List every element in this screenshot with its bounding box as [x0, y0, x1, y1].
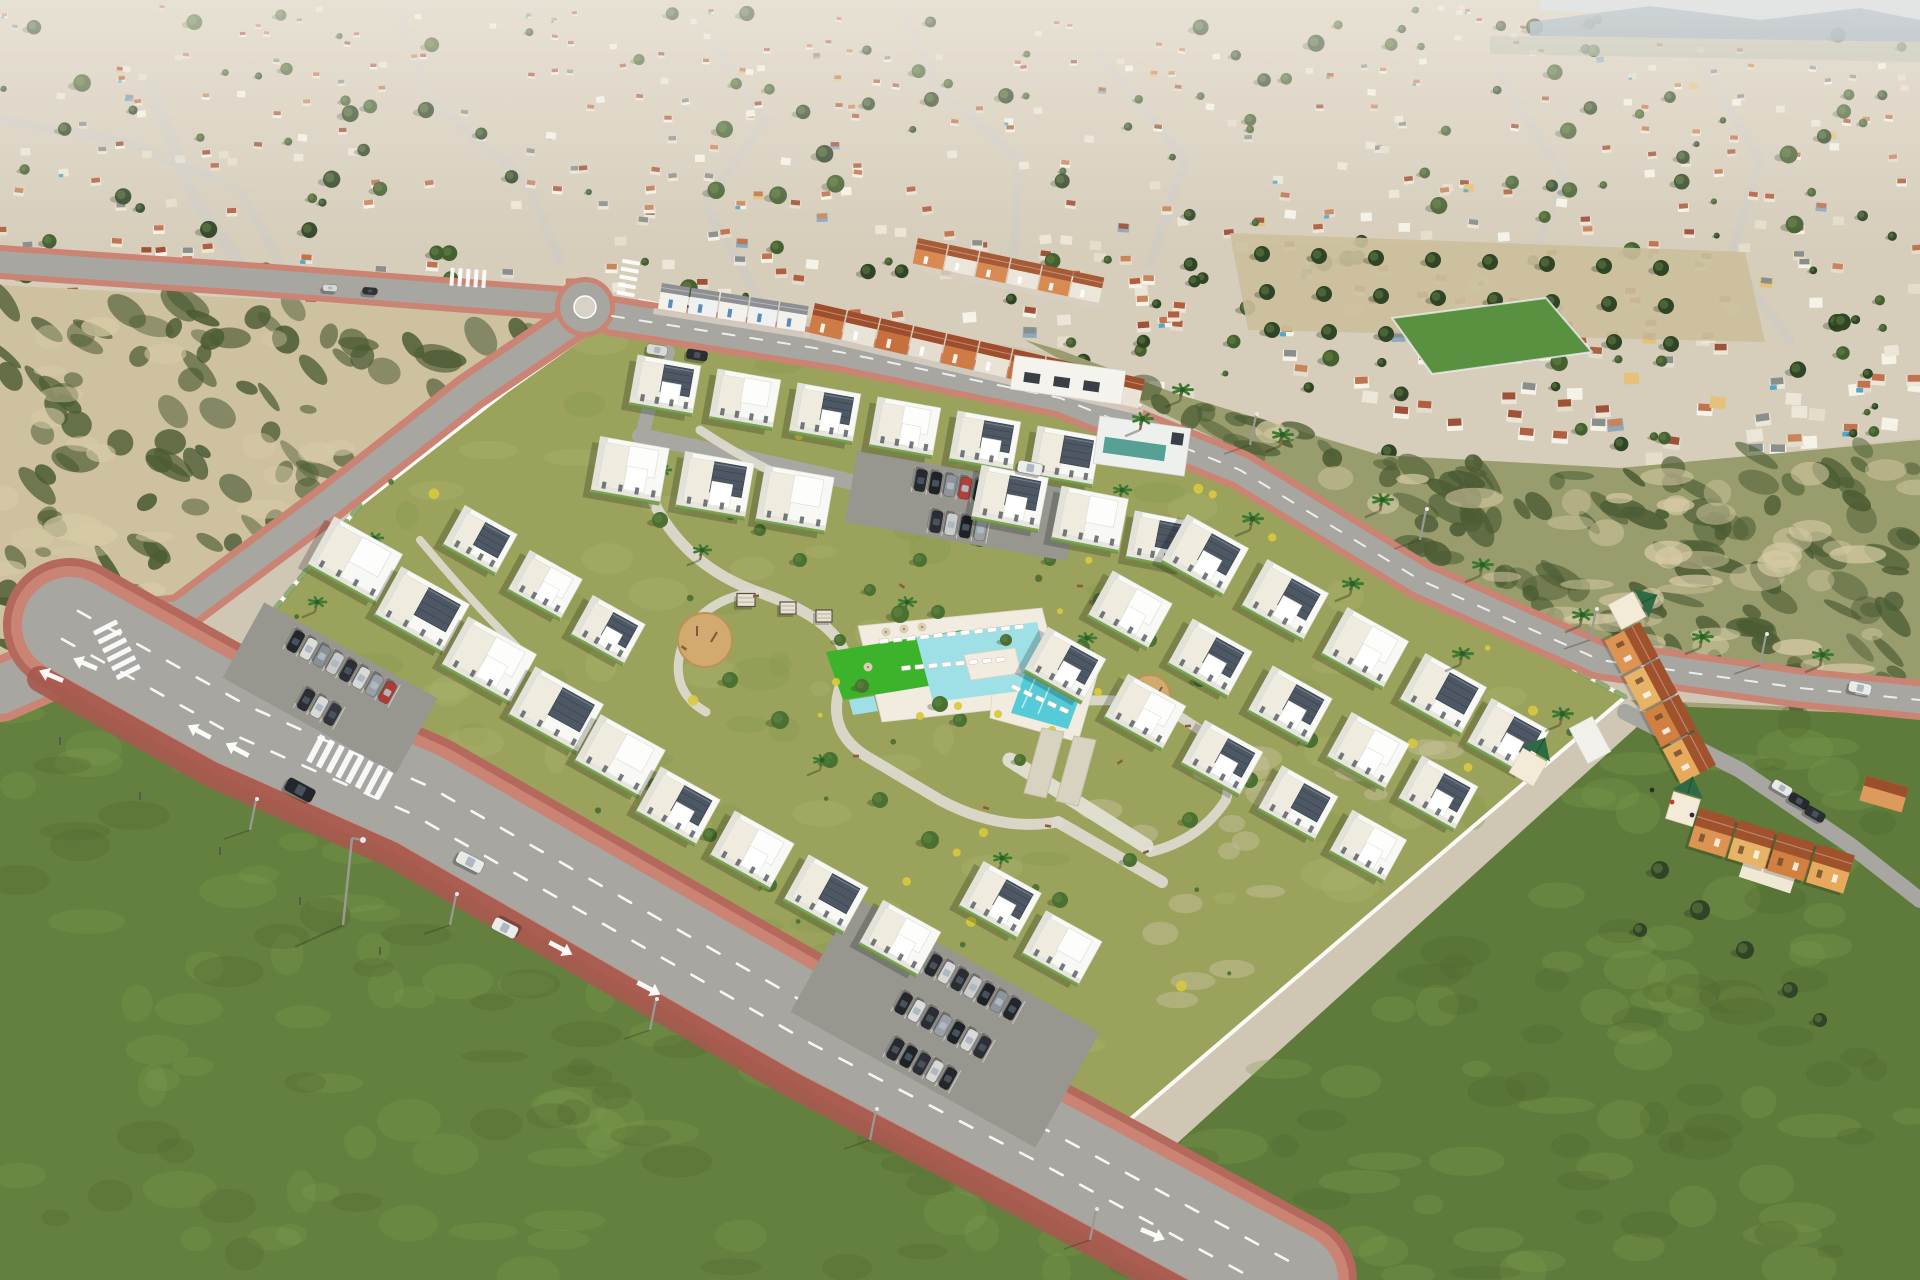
apartment-block: [861, 396, 941, 464]
haze-overlay: [0, 0, 1920, 250]
apartment-block: [748, 464, 835, 539]
apartment-block: [701, 368, 781, 436]
apartment-block: [668, 450, 755, 525]
apartment-block: [781, 382, 861, 450]
aerial-photo-canvas: [0, 0, 1920, 1280]
apartment-block: [621, 354, 701, 422]
apartment-block: [583, 435, 670, 510]
aerial-render: [0, 0, 1920, 1280]
